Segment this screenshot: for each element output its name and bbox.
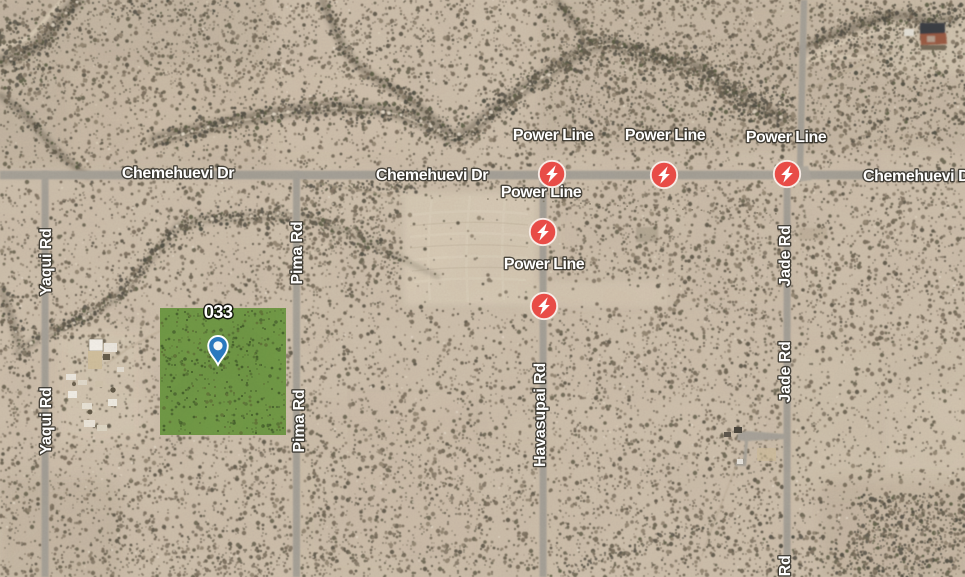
- svg-text:033: 033: [204, 301, 233, 322]
- svg-text:Power Line: Power Line: [504, 256, 585, 273]
- svg-text:Chemehuevi Dr: Chemehuevi Dr: [863, 168, 965, 185]
- svg-text:Power Line: Power Line: [501, 184, 582, 201]
- svg-text:Chemehuevi Dr: Chemehuevi Dr: [376, 167, 488, 184]
- svg-text:Jade Rd: Jade Rd: [777, 555, 794, 577]
- svg-text:Jade Rd: Jade Rd: [777, 225, 794, 286]
- svg-text:Yaqui Rd: Yaqui Rd: [38, 228, 55, 295]
- svg-text:Jade Rd: Jade Rd: [777, 341, 794, 402]
- svg-text:Pima Rd: Pima Rd: [289, 222, 306, 285]
- svg-text:Chemehuevi Dr: Chemehuevi Dr: [122, 165, 234, 182]
- svg-text:Power Line: Power Line: [625, 127, 706, 144]
- svg-text:Yaqui Rd: Yaqui Rd: [38, 387, 55, 454]
- svg-text:Pima Rd: Pima Rd: [291, 390, 308, 453]
- svg-text:Power Line: Power Line: [746, 129, 827, 146]
- svg-text:Power Line: Power Line: [513, 127, 594, 144]
- svg-text:Havasupai Rd: Havasupai Rd: [532, 363, 549, 467]
